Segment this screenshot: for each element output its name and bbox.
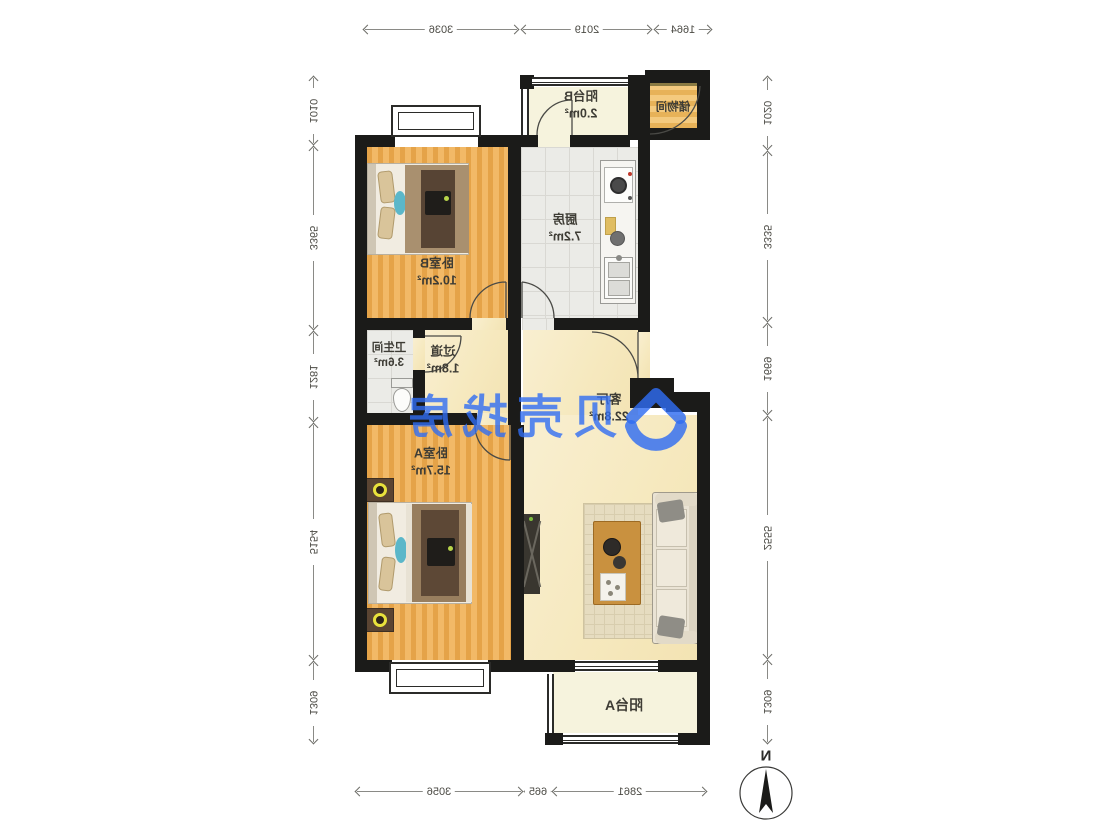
dim-left-1: 1010 [313, 78, 314, 143]
room-name: 阳台A [605, 696, 643, 714]
dim-value: 1020 [760, 90, 776, 136]
dim-bottom-2: 665 [526, 791, 549, 792]
dim-right-3: 1669 [767, 325, 768, 413]
dim-value: 5154 [306, 519, 322, 565]
dim-value: 1309 [760, 679, 776, 725]
dim-value: 1309 [306, 680, 322, 726]
room-name: 卧室A [411, 446, 451, 463]
room-label-hallway: 过道 1.8m² [427, 344, 460, 377]
room-label-bedroom-b: 卧室B 10.2m² [417, 256, 457, 289]
beike-logo-icon [616, 380, 696, 452]
room-label-bathroom: 卫生间 3.6m² [372, 341, 407, 371]
entry-door [592, 332, 638, 378]
room-area: 7.2m² [549, 228, 582, 245]
bedroom-b-door [470, 282, 506, 318]
room-name: 卧室B [417, 256, 457, 273]
dim-value: 3056 [423, 786, 455, 798]
dim-value: 1664 [667, 24, 699, 36]
floor-plan-page: { "rooms": { "bedroom_b": {"name": "卧室B"… [0, 0, 1106, 826]
dim-value: 2861 [613, 786, 645, 798]
compass-icon [737, 763, 797, 825]
room-name: 厨房 [549, 212, 582, 229]
dim-value: 2019 [570, 24, 602, 36]
room-label-storage: 储物间 [656, 100, 691, 115]
floor-plan-canvas: 卧室B 10.2m² 厨房 7.2m² 阳台B 2.0m² 储物间 卫生间 3.… [0, 0, 1106, 826]
dim-value: 3335 [760, 214, 776, 260]
dim-bottom-1: 3056 [357, 791, 521, 792]
dim-left-3: 1281 [313, 333, 314, 420]
room-area: 1.8m² [427, 360, 460, 377]
dim-value: 665 [524, 786, 550, 798]
dim-left-5: 1309 [313, 663, 314, 742]
dim-value: 1010 [306, 88, 322, 134]
dim-right-2: 3335 [767, 153, 768, 320]
dim-right-4: 2555 [767, 418, 768, 657]
dim-value: 3365 [306, 215, 322, 261]
compass-north-label: N [761, 748, 772, 765]
room-area: 10.2m² [417, 272, 457, 289]
watermark-text: 贝壳找房 [398, 381, 618, 447]
room-label-kitchen: 厨房 7.2m² [549, 212, 582, 245]
dim-value: 3036 [425, 24, 457, 36]
room-name: 卫生间 [372, 341, 407, 356]
room-name: 阳台B [564, 89, 598, 106]
dim-right-5: 1309 [767, 662, 768, 742]
room-area: 2.0m² [564, 105, 598, 122]
dim-value: 2555 [760, 515, 776, 561]
dim-value: 1281 [306, 354, 322, 400]
dim-top-1: 3036 [365, 29, 517, 30]
dim-left-4: 5154 [313, 425, 314, 658]
room-label-balcony-a: 阳台A [605, 696, 643, 714]
room-area: 15.7m² [411, 462, 451, 479]
room-area: 3.6m² [372, 356, 407, 371]
dim-left-2: 3365 [313, 148, 314, 328]
dim-top-2: 2019 [523, 29, 650, 30]
dim-right-1: 1020 [767, 78, 768, 148]
room-label-balcony-b: 阳台B 2.0m² [564, 89, 598, 122]
room-label-bedroom-a: 卧室A 15.7m² [411, 446, 451, 479]
dim-value: 1669 [760, 346, 776, 392]
dim-bottom-3: 2861 [554, 791, 705, 792]
room-name: 过道 [427, 344, 460, 361]
dim-top-3: 1664 [656, 29, 710, 30]
kitchen-door [522, 282, 554, 318]
room-name: 储物间 [656, 100, 691, 115]
